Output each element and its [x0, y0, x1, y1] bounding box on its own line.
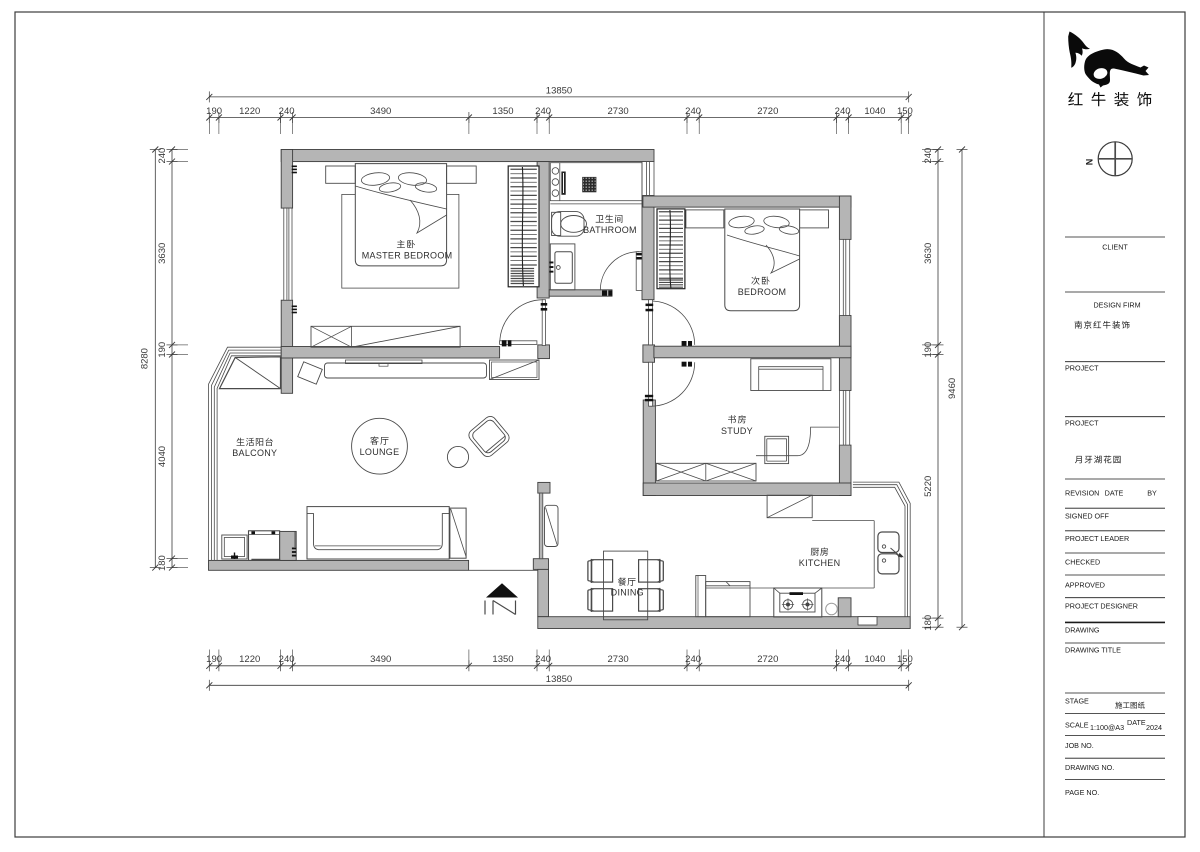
svg-text:180: 180: [923, 615, 934, 631]
svg-text:240: 240: [685, 654, 701, 665]
svg-text:1350: 1350: [492, 654, 513, 665]
svg-text:2720: 2720: [757, 654, 778, 665]
svg-text:DATE: DATE: [1105, 488, 1124, 497]
svg-text:BEDROOM: BEDROOM: [738, 287, 787, 297]
svg-text:N: N: [1085, 159, 1095, 166]
svg-text:3630: 3630: [157, 243, 168, 264]
svg-text:DESIGN FIRM: DESIGN FIRM: [1093, 301, 1140, 310]
svg-text:KITCHEN: KITCHEN: [799, 558, 841, 568]
svg-text:8280: 8280: [140, 348, 151, 369]
svg-text:BY: BY: [1147, 488, 1157, 497]
svg-text:PROJECT: PROJECT: [1065, 419, 1099, 428]
svg-text:REVISION: REVISION: [1065, 488, 1099, 497]
svg-text:1:100@A3: 1:100@A3: [1090, 723, 1124, 732]
svg-text:APPROVED: APPROVED: [1065, 580, 1105, 589]
svg-text:BATHROOM: BATHROOM: [583, 225, 637, 235]
svg-text:DRAWING: DRAWING: [1065, 626, 1100, 635]
svg-text:DATE: DATE: [1127, 718, 1146, 727]
svg-text:2730: 2730: [608, 654, 629, 665]
svg-text:4040: 4040: [157, 446, 168, 467]
svg-text:JOB NO.: JOB NO.: [1065, 741, 1094, 750]
svg-text:1350: 1350: [492, 106, 513, 117]
svg-text:3490: 3490: [370, 106, 391, 117]
svg-text:240: 240: [835, 654, 851, 665]
svg-text:1040: 1040: [864, 654, 885, 665]
svg-text:DRAWING NO.: DRAWING NO.: [1065, 763, 1114, 772]
svg-text:3630: 3630: [923, 243, 934, 264]
svg-text:SCALE: SCALE: [1065, 720, 1089, 729]
svg-text:2720: 2720: [757, 106, 778, 117]
svg-text:190: 190: [206, 106, 222, 117]
svg-text:CHECKED: CHECKED: [1065, 557, 1100, 566]
svg-text:PAGE NO.: PAGE NO.: [1065, 788, 1099, 797]
svg-text:STUDY: STUDY: [721, 426, 753, 436]
svg-text:9460: 9460: [947, 378, 958, 399]
svg-text:150: 150: [897, 654, 913, 665]
svg-text:13850: 13850: [546, 674, 572, 685]
svg-text:3490: 3490: [370, 654, 391, 665]
svg-text:240: 240: [279, 654, 295, 665]
svg-text:BALCONY: BALCONY: [232, 448, 277, 458]
svg-text:240: 240: [685, 106, 701, 117]
svg-text:1040: 1040: [864, 106, 885, 117]
svg-text:PROJECT DESIGNER: PROJECT DESIGNER: [1065, 602, 1138, 611]
svg-text:240: 240: [835, 106, 851, 117]
svg-text:180: 180: [157, 555, 168, 571]
svg-text:1220: 1220: [239, 106, 260, 117]
svg-text:1220: 1220: [239, 654, 260, 665]
svg-text:240: 240: [923, 148, 934, 164]
svg-text:PROJECT: PROJECT: [1065, 363, 1099, 372]
svg-text:CLIENT: CLIENT: [1102, 243, 1128, 252]
svg-text:13850: 13850: [546, 86, 572, 97]
svg-text:240: 240: [535, 654, 551, 665]
svg-text:150: 150: [897, 106, 913, 117]
svg-text:DINING: DINING: [611, 588, 644, 598]
svg-text:240: 240: [535, 106, 551, 117]
svg-text:190: 190: [206, 654, 222, 665]
svg-text:190: 190: [923, 342, 934, 358]
svg-text:190: 190: [157, 342, 168, 358]
svg-text:240: 240: [279, 106, 295, 117]
svg-text:240: 240: [157, 148, 168, 164]
svg-text:2730: 2730: [608, 106, 629, 117]
svg-text:2024: 2024: [1146, 723, 1162, 732]
svg-text:DRAWING TITLE: DRAWING TITLE: [1065, 646, 1121, 655]
svg-text:LOUNGE: LOUNGE: [360, 447, 400, 457]
svg-text:SIGNED OFF: SIGNED OFF: [1065, 512, 1110, 521]
svg-text:MASTER BEDROOM: MASTER BEDROOM: [362, 250, 453, 260]
svg-text:STAGE: STAGE: [1065, 696, 1089, 705]
svg-text:5220: 5220: [923, 476, 934, 497]
svg-text:PROJECT LEADER: PROJECT LEADER: [1065, 534, 1129, 543]
